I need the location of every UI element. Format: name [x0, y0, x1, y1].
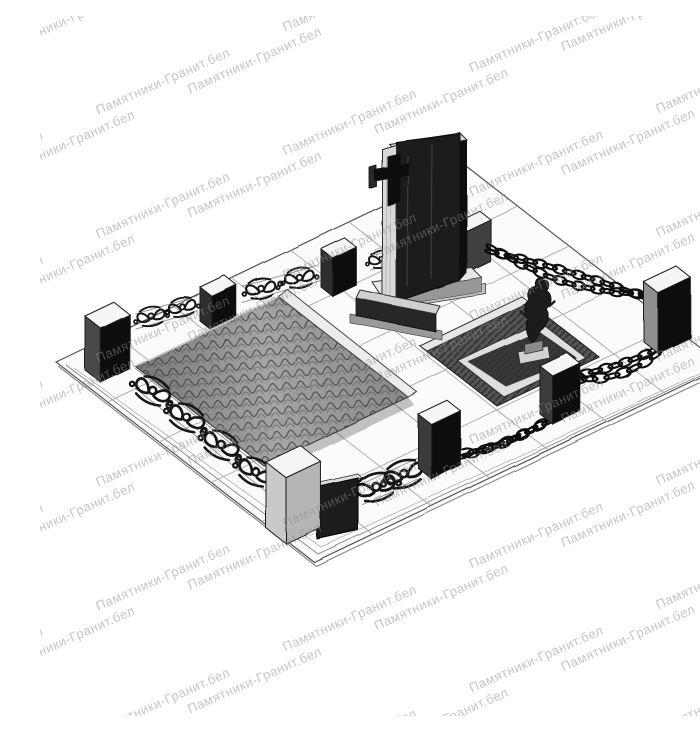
stela [369, 133, 467, 309]
stone-panel [317, 478, 358, 539]
fence-post [644, 267, 691, 354]
fence-post [540, 353, 580, 424]
fence-post [266, 446, 321, 544]
fence-post [85, 302, 130, 382]
sketch-canvas [40, 16, 700, 716]
memorial-sketch: Памятники-Гранит.бел Памятники-Гранит.бе… [40, 16, 700, 716]
fence-post [321, 238, 356, 296]
fence-post [418, 400, 460, 478]
